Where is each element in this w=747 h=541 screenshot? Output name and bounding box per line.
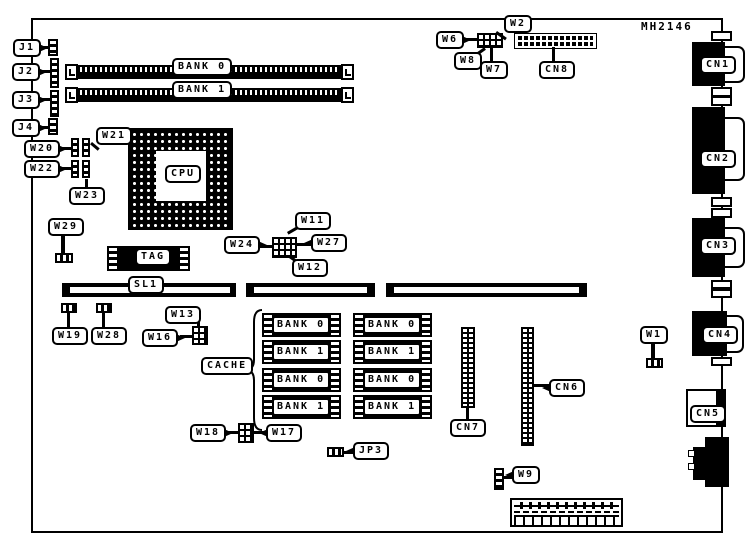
power-connector-dashes	[514, 511, 619, 513]
cn3-screw	[711, 280, 732, 289]
callout-w13: W13	[165, 306, 201, 324]
simm-slot-latch	[65, 87, 78, 103]
callout-w29: W29	[48, 218, 84, 236]
w9-jumper	[494, 468, 504, 490]
callout-w18: W18	[190, 424, 226, 442]
cn8-connector	[514, 33, 597, 49]
callout-cn6: CN6	[549, 379, 585, 397]
callout-w7: W7	[480, 61, 508, 79]
din-notch	[688, 463, 695, 470]
bank0-slot-label: BANK 0	[172, 58, 232, 76]
keyboard-din-connector	[705, 437, 729, 487]
cn4-label: CN4	[702, 326, 738, 344]
callout-w20: W20	[24, 140, 60, 158]
callout-j3: J3	[12, 91, 40, 109]
slot-2-groove	[254, 287, 367, 293]
callout-w1: W1	[640, 326, 668, 344]
cache-chip-label: BANK 1	[363, 398, 421, 416]
j2-header	[50, 58, 59, 88]
cn2-dsub-shell	[725, 117, 745, 181]
slot-3-groove	[394, 287, 579, 293]
callout-w28: W28	[91, 327, 127, 345]
simm-slot-latch	[341, 87, 354, 103]
cn6-connector	[521, 327, 534, 446]
cn1-screw	[711, 31, 732, 41]
w20-jumper	[71, 138, 79, 157]
power-connector-line	[514, 505, 619, 507]
cache-label: CACHE	[201, 357, 253, 375]
cn2-screw	[711, 197, 732, 207]
cn2-screw	[711, 96, 732, 106]
cn8-leader	[552, 47, 555, 62]
callout-cn8: CN8	[539, 61, 575, 79]
callout-cn7: CN7	[450, 419, 486, 437]
callout-w17: W17	[266, 424, 302, 442]
j4-header	[48, 118, 58, 135]
callout-w19: W19	[52, 327, 88, 345]
din-notch	[688, 450, 695, 457]
callout-j2: J2	[12, 63, 40, 81]
cache-chip-label: BANK 0	[363, 316, 421, 334]
cn2-label: CN2	[700, 150, 736, 168]
callout-j4: J4	[12, 119, 40, 137]
w23-jumper	[82, 160, 90, 178]
board-model-text: MH2146	[641, 20, 693, 33]
callout-jp3: JP3	[353, 442, 389, 460]
callout-w2: W2	[504, 15, 532, 33]
cn4-screw	[711, 289, 732, 298]
cache-chip-label: BANK 0	[363, 371, 421, 389]
callout-w16: W16	[142, 329, 178, 347]
motherboard-diagram: MH2146 BANK 0 BANK 1 J1 J2 J3 J4 W20 W22…	[0, 0, 747, 541]
simm-slot-latch	[65, 64, 78, 80]
w28-jumper	[96, 303, 112, 313]
cache-chip-label: BANK 0	[272, 316, 330, 334]
callout-w21: W21	[96, 127, 132, 145]
sl1-label: SL1	[128, 276, 164, 294]
cpu-label: CPU	[165, 165, 201, 183]
w29-leader	[61, 235, 65, 253]
power-connector	[510, 498, 623, 527]
cn3-label: CN3	[700, 237, 736, 255]
w28-leader	[102, 313, 105, 328]
jp3-jumper	[327, 447, 344, 457]
simm-slot-latch	[341, 64, 354, 80]
callout-w12: W12	[292, 259, 328, 277]
callout-w6: W6	[436, 31, 464, 49]
j1-header	[48, 39, 58, 56]
callout-w24: W24	[224, 236, 260, 254]
tag-label: TAG	[135, 248, 171, 266]
w19-leader	[67, 313, 70, 328]
w19-jumper	[61, 303, 77, 313]
cn4-screw	[711, 357, 732, 366]
w16-jumper-block	[192, 326, 208, 345]
bank1-slot-label: BANK 1	[172, 81, 232, 99]
callout-w8: W8	[454, 52, 482, 70]
w24-jumper-block	[272, 237, 297, 258]
w1-jumper	[646, 358, 663, 368]
cn8-pin-row	[518, 42, 593, 46]
callout-w9: W9	[512, 466, 540, 484]
w7-leader	[490, 48, 493, 61]
callout-w22: W22	[24, 160, 60, 178]
w21-jumper	[82, 138, 90, 157]
callout-w27: W27	[311, 234, 347, 252]
callout-j1: J1	[13, 39, 41, 57]
cache-chip-label: BANK 1	[272, 343, 330, 361]
w1-leader	[651, 343, 655, 358]
cn1-label: CN1	[700, 56, 736, 74]
cache-chip-label: BANK 1	[272, 398, 330, 416]
power-connector-holes	[514, 515, 619, 525]
cn5-label: CN5	[690, 405, 726, 423]
callout-w23: W23	[69, 187, 105, 205]
keyboard-din-connector-body	[693, 447, 707, 480]
cn7-connector	[461, 327, 475, 408]
w22-jumper	[71, 160, 79, 178]
cache-chip-label: BANK 1	[363, 343, 421, 361]
callout-w11: W11	[295, 212, 331, 230]
cn3-screw	[711, 208, 732, 218]
j3-header	[50, 90, 59, 117]
cn8-pin-row	[518, 36, 593, 40]
cache-chip-label: BANK 0	[272, 371, 330, 389]
w29-jumper	[55, 253, 73, 263]
